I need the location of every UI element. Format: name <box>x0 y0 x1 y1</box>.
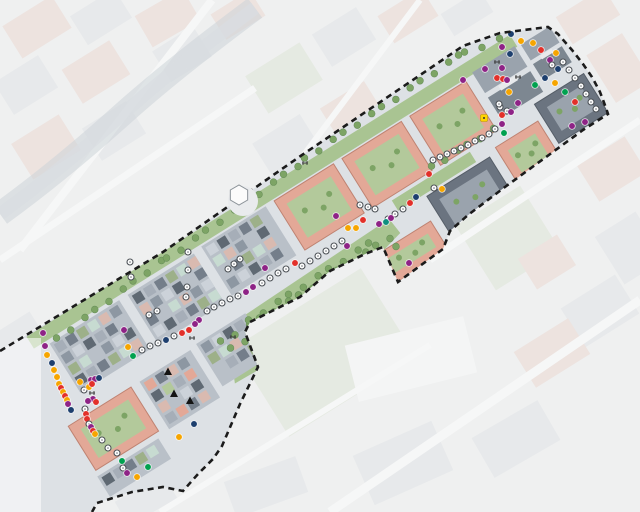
marker-dot-purple <box>42 343 49 350</box>
marker-dot-orange <box>518 38 525 45</box>
marker-dot-red <box>407 200 414 207</box>
marker-dot-orange <box>552 80 559 87</box>
marker-dot-navy <box>542 75 549 82</box>
marker-dot-orange <box>176 434 183 441</box>
marker-dot-navy <box>507 51 514 58</box>
marker-dot-green <box>130 353 137 360</box>
marker-dot-purple <box>333 213 340 220</box>
pavilion <box>230 185 247 205</box>
marker-dot-red <box>538 47 545 54</box>
marker-dot-green <box>532 82 539 89</box>
marker-dot-red <box>499 112 506 119</box>
marker-dot-purple <box>460 77 467 84</box>
marker-dot-purple <box>515 100 522 107</box>
marker-dot-purple <box>569 123 576 130</box>
site-plan-map <box>0 0 640 512</box>
marker-dot-orange <box>125 344 132 351</box>
marker-dot-red <box>186 327 193 334</box>
marker-dot-purple <box>65 401 72 408</box>
marker-dot-purple <box>344 243 351 250</box>
marker-dot-green <box>562 89 569 96</box>
marker-dot-purple <box>504 77 511 84</box>
marker-dot-purple <box>121 327 128 334</box>
marker-dot-navy <box>49 360 56 367</box>
marker-dot-green <box>119 458 126 465</box>
marker-dot-purple <box>250 284 257 291</box>
marker-dot-orange <box>134 474 141 481</box>
marker-dot-navy <box>96 375 103 382</box>
marker-dot-purple <box>243 289 250 296</box>
marker-dot-red <box>426 171 433 178</box>
marker-dot-navy <box>68 407 75 414</box>
marker-dot-purple <box>40 330 47 337</box>
marker-dot-purple <box>406 260 413 267</box>
marker-dot-red <box>572 99 579 106</box>
marker-dot-green <box>145 464 152 471</box>
marker-dot-purple <box>262 265 269 272</box>
marker-dot-purple <box>499 121 506 128</box>
marker-dot-orange <box>77 379 84 386</box>
marker-dot-red <box>292 260 299 267</box>
marker-dot-navy <box>163 337 170 344</box>
marker-dot-red <box>89 381 96 388</box>
marker-dot-purple <box>192 321 199 328</box>
marker-dot-green <box>501 130 508 137</box>
marker-dot-orange <box>530 40 537 47</box>
marker-dot-orange <box>506 89 513 96</box>
marker-dot-navy <box>191 421 198 428</box>
marker-dot-navy <box>555 66 562 73</box>
marker-dot-navy <box>413 194 420 201</box>
marker-dot-orange <box>44 352 51 359</box>
marker-dot-purple <box>482 66 489 73</box>
marker-dot-purple <box>499 65 506 72</box>
marker-dot-orange <box>439 186 446 193</box>
marker-dot-red <box>360 217 367 224</box>
marker-dot-red <box>93 399 100 406</box>
marker-dot-purple <box>499 44 506 51</box>
marker-dot-orange <box>92 431 99 438</box>
marker-dot-purple <box>124 470 131 477</box>
marker-dot-orange <box>553 50 560 57</box>
marker-dot-orange <box>345 225 352 232</box>
marker-dot-purple <box>85 398 92 405</box>
marker-dot-red <box>494 75 501 82</box>
marker-dot-orange <box>54 374 61 381</box>
marker-dot-purple <box>582 119 589 126</box>
marker-dot-purple <box>508 109 515 116</box>
marker-dot-purple <box>376 221 383 228</box>
marker-dot-red <box>179 330 186 337</box>
marker-dot-orange <box>353 225 360 232</box>
marker-dot-orange <box>51 367 58 374</box>
marker-dot-purple <box>388 215 395 222</box>
map-svg <box>0 0 640 512</box>
